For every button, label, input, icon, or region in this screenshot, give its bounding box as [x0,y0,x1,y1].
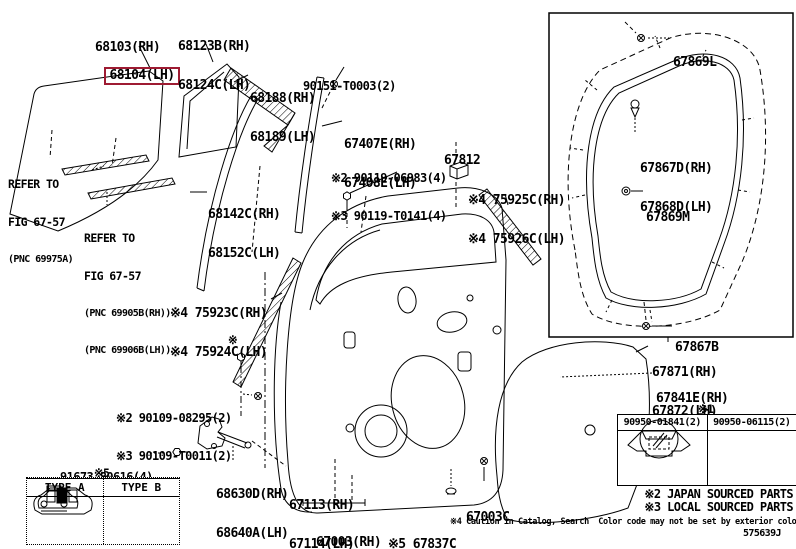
part-number[interactable]: 68152C(LH) [208,247,280,260]
check-cover-drawing [446,469,456,494]
part-number[interactable]: 68103(RH) [95,41,180,54]
note-refer-upper: REFER TO FIG 67-57 (PNC 69975A) [8,152,73,278]
legend-local-sourced: ※3 LOCAL SOURCED PARTS [644,501,793,514]
part-number[interactable]: ※4 75924C(LH) [170,346,267,359]
callout-door-glass: 68103(RH) 68104(LH) [95,15,180,85]
grommet-table: 90950-01841(2) 90950-06115(2) [617,414,796,486]
type-b-drawing [27,478,81,520]
callout-door-check: 68630D(RH) 68640A(LH) [216,462,288,549]
note-line: (PNC 69905B(RH)) [84,308,171,319]
part-number[interactable]: ※5 67837C [388,538,456,549]
part-number[interactable]: ※4 75925C(RH) [468,194,565,207]
part-number-highlighted[interactable]: 68104(LH) [104,67,179,85]
callout-ws-clip-top: 67869L [673,30,716,82]
part-number[interactable]: 67841E(RH) [656,392,728,405]
part-number[interactable]: 67812 [444,154,480,167]
legend-caution-note: ※4 Caution in Catalog, Search Color code… [450,517,793,527]
note-line: REFER TO [84,232,171,244]
callout-quarter-glass: 68123B(RH) 68124C(LH) [178,14,250,105]
callout-screw-front-guide: 90151-T0003(2) [303,55,396,105]
note-line: (PNC 69975A) [8,254,73,265]
part-number[interactable]: ※2 90109-08295(2) [116,412,231,425]
note-line: FIG 67-57 [84,270,171,282]
callout-glass-run: 68142C(RH) 68152C(LH) [208,182,280,273]
callout-guide-bolts: ※2 90119-06983(4) ※3 90119-T0141(4) [331,147,446,235]
part-number[interactable]: 68142C(RH) [208,208,280,221]
panel-plug-drawing [481,458,488,482]
parts-diagram-page: 68103(RH) 68104(LH) 68123B(RH) 68124C(LH… [0,0,796,549]
part-number[interactable]: ※2 90119-06983(4) [331,172,446,185]
part-number[interactable]: ※3 90119-T0141(4) [331,210,446,223]
callout-panel-plug: 67003C [466,485,509,537]
note-refer-lower: REFER TO FIG 67-57 (PNC 69905B(RH)) (PNC… [84,206,171,369]
part-number[interactable]: ※4 75923C(RH) [170,307,267,320]
note-line: (PNC 69906B(LH)) [84,345,171,356]
part-number[interactable]: 68123B(RH) [178,40,250,53]
note-line: REFER TO [8,178,73,190]
star-mark: ※ [228,334,237,346]
type-table: TYPE A TYPE B [26,477,180,545]
part-number[interactable]: 68630D(RH) [216,488,288,501]
part-number[interactable]: 90151-T0003(2) [303,80,396,93]
part-number[interactable]: 67869M [646,211,689,224]
part-number[interactable]: 67867D(RH) [640,162,712,175]
part-number[interactable]: ※4 75926C(LH) [468,233,565,246]
callout-door-panel: 67003(RH) 67004(LH) [316,510,381,549]
legend-japan-sourced: ※2 JAPAN SOURCED PARTS [644,488,793,501]
diagram-number: 575639J [743,528,781,539]
type-b-header[interactable]: TYPE B [103,479,180,496]
callout-check-cover: ※5 67837C [388,512,456,549]
note-line: FIG 67-57 [8,216,73,228]
part-number[interactable]: 68189(LH) [250,131,315,144]
grommet-col2-part[interactable]: 90950-06115(2) [707,415,796,430]
grommet-plug-cell [707,431,796,485]
part-number[interactable]: 68124C(LH) [178,79,250,92]
plug-drawing [618,415,700,463]
callout-rear-belt-molding: ※4 75925C(RH) ※4 75926C(LH) [468,168,565,259]
callout-ws-clip-side: 67869M [646,185,689,237]
part-number[interactable]: 67869L [673,56,716,69]
callout-front-belt-molding: ※4 75923C(RH) ※4 75924C(LH) [170,281,267,372]
part-number[interactable]: 68640A(LH) [216,527,288,540]
part-number[interactable]: 67003(RH) [316,536,381,549]
type-b-cell [103,497,180,544]
